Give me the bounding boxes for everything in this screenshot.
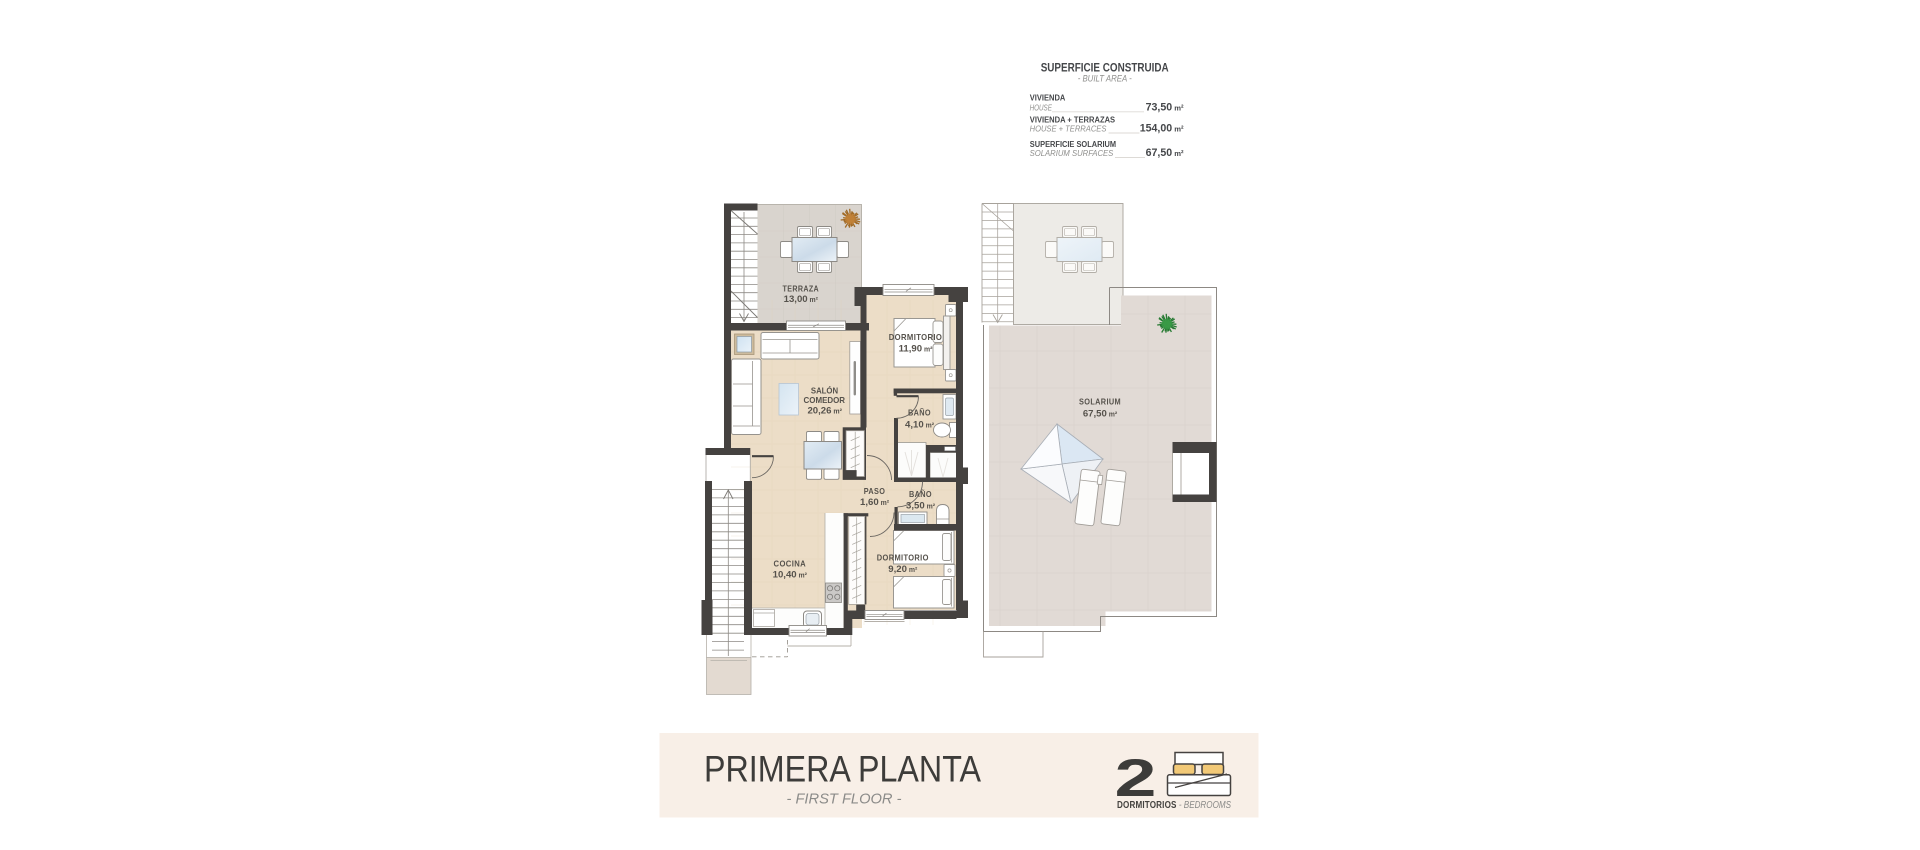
svg-text:PRIMERA PLANTA: PRIMERA PLANTA xyxy=(704,748,981,790)
svg-text:SOLARIUM: SOLARIUM xyxy=(1079,398,1121,407)
svg-text:73,50 m²: 73,50 m² xyxy=(1146,101,1184,113)
svg-text:TERRAZA: TERRAZA xyxy=(783,284,820,293)
svg-text:VIVIENDA: VIVIENDA xyxy=(1030,93,1066,103)
svg-text:BAÑO: BAÑO xyxy=(908,408,931,418)
svg-text:COCINA: COCINA xyxy=(774,560,807,569)
svg-text:- BUILT AREA -: - BUILT AREA - xyxy=(1078,74,1132,84)
svg-text:HOUSE + TERRACES: HOUSE + TERRACES xyxy=(1030,124,1107,134)
svg-text:2: 2 xyxy=(1115,749,1157,808)
svg-text:PASO: PASO xyxy=(864,487,886,496)
svg-text:154,00 m²: 154,00 m² xyxy=(1140,123,1184,135)
svg-text:COMEDOR: COMEDOR xyxy=(804,396,846,405)
svg-text:67,50 m²: 67,50 m² xyxy=(1146,147,1184,159)
svg-text:DORMITORIOS - BEDROOMS: DORMITORIOS - BEDROOMS xyxy=(1117,800,1231,811)
svg-text:DORMITORIO: DORMITORIO xyxy=(877,554,929,563)
svg-text:DORMITORIO: DORMITORIO xyxy=(889,333,943,342)
svg-text:HOUSE: HOUSE xyxy=(1030,103,1053,113)
svg-text:BAÑO: BAÑO xyxy=(909,489,932,499)
svg-text:- FIRST FLOOR -: - FIRST FLOOR - xyxy=(787,792,902,808)
svg-text:SOLARIUM SURFACES: SOLARIUM SURFACES xyxy=(1030,148,1114,158)
svg-text:SUPERFICIE CONSTRUIDA: SUPERFICIE CONSTRUIDA xyxy=(1041,62,1170,75)
svg-text:SALÓN: SALÓN xyxy=(811,385,838,396)
